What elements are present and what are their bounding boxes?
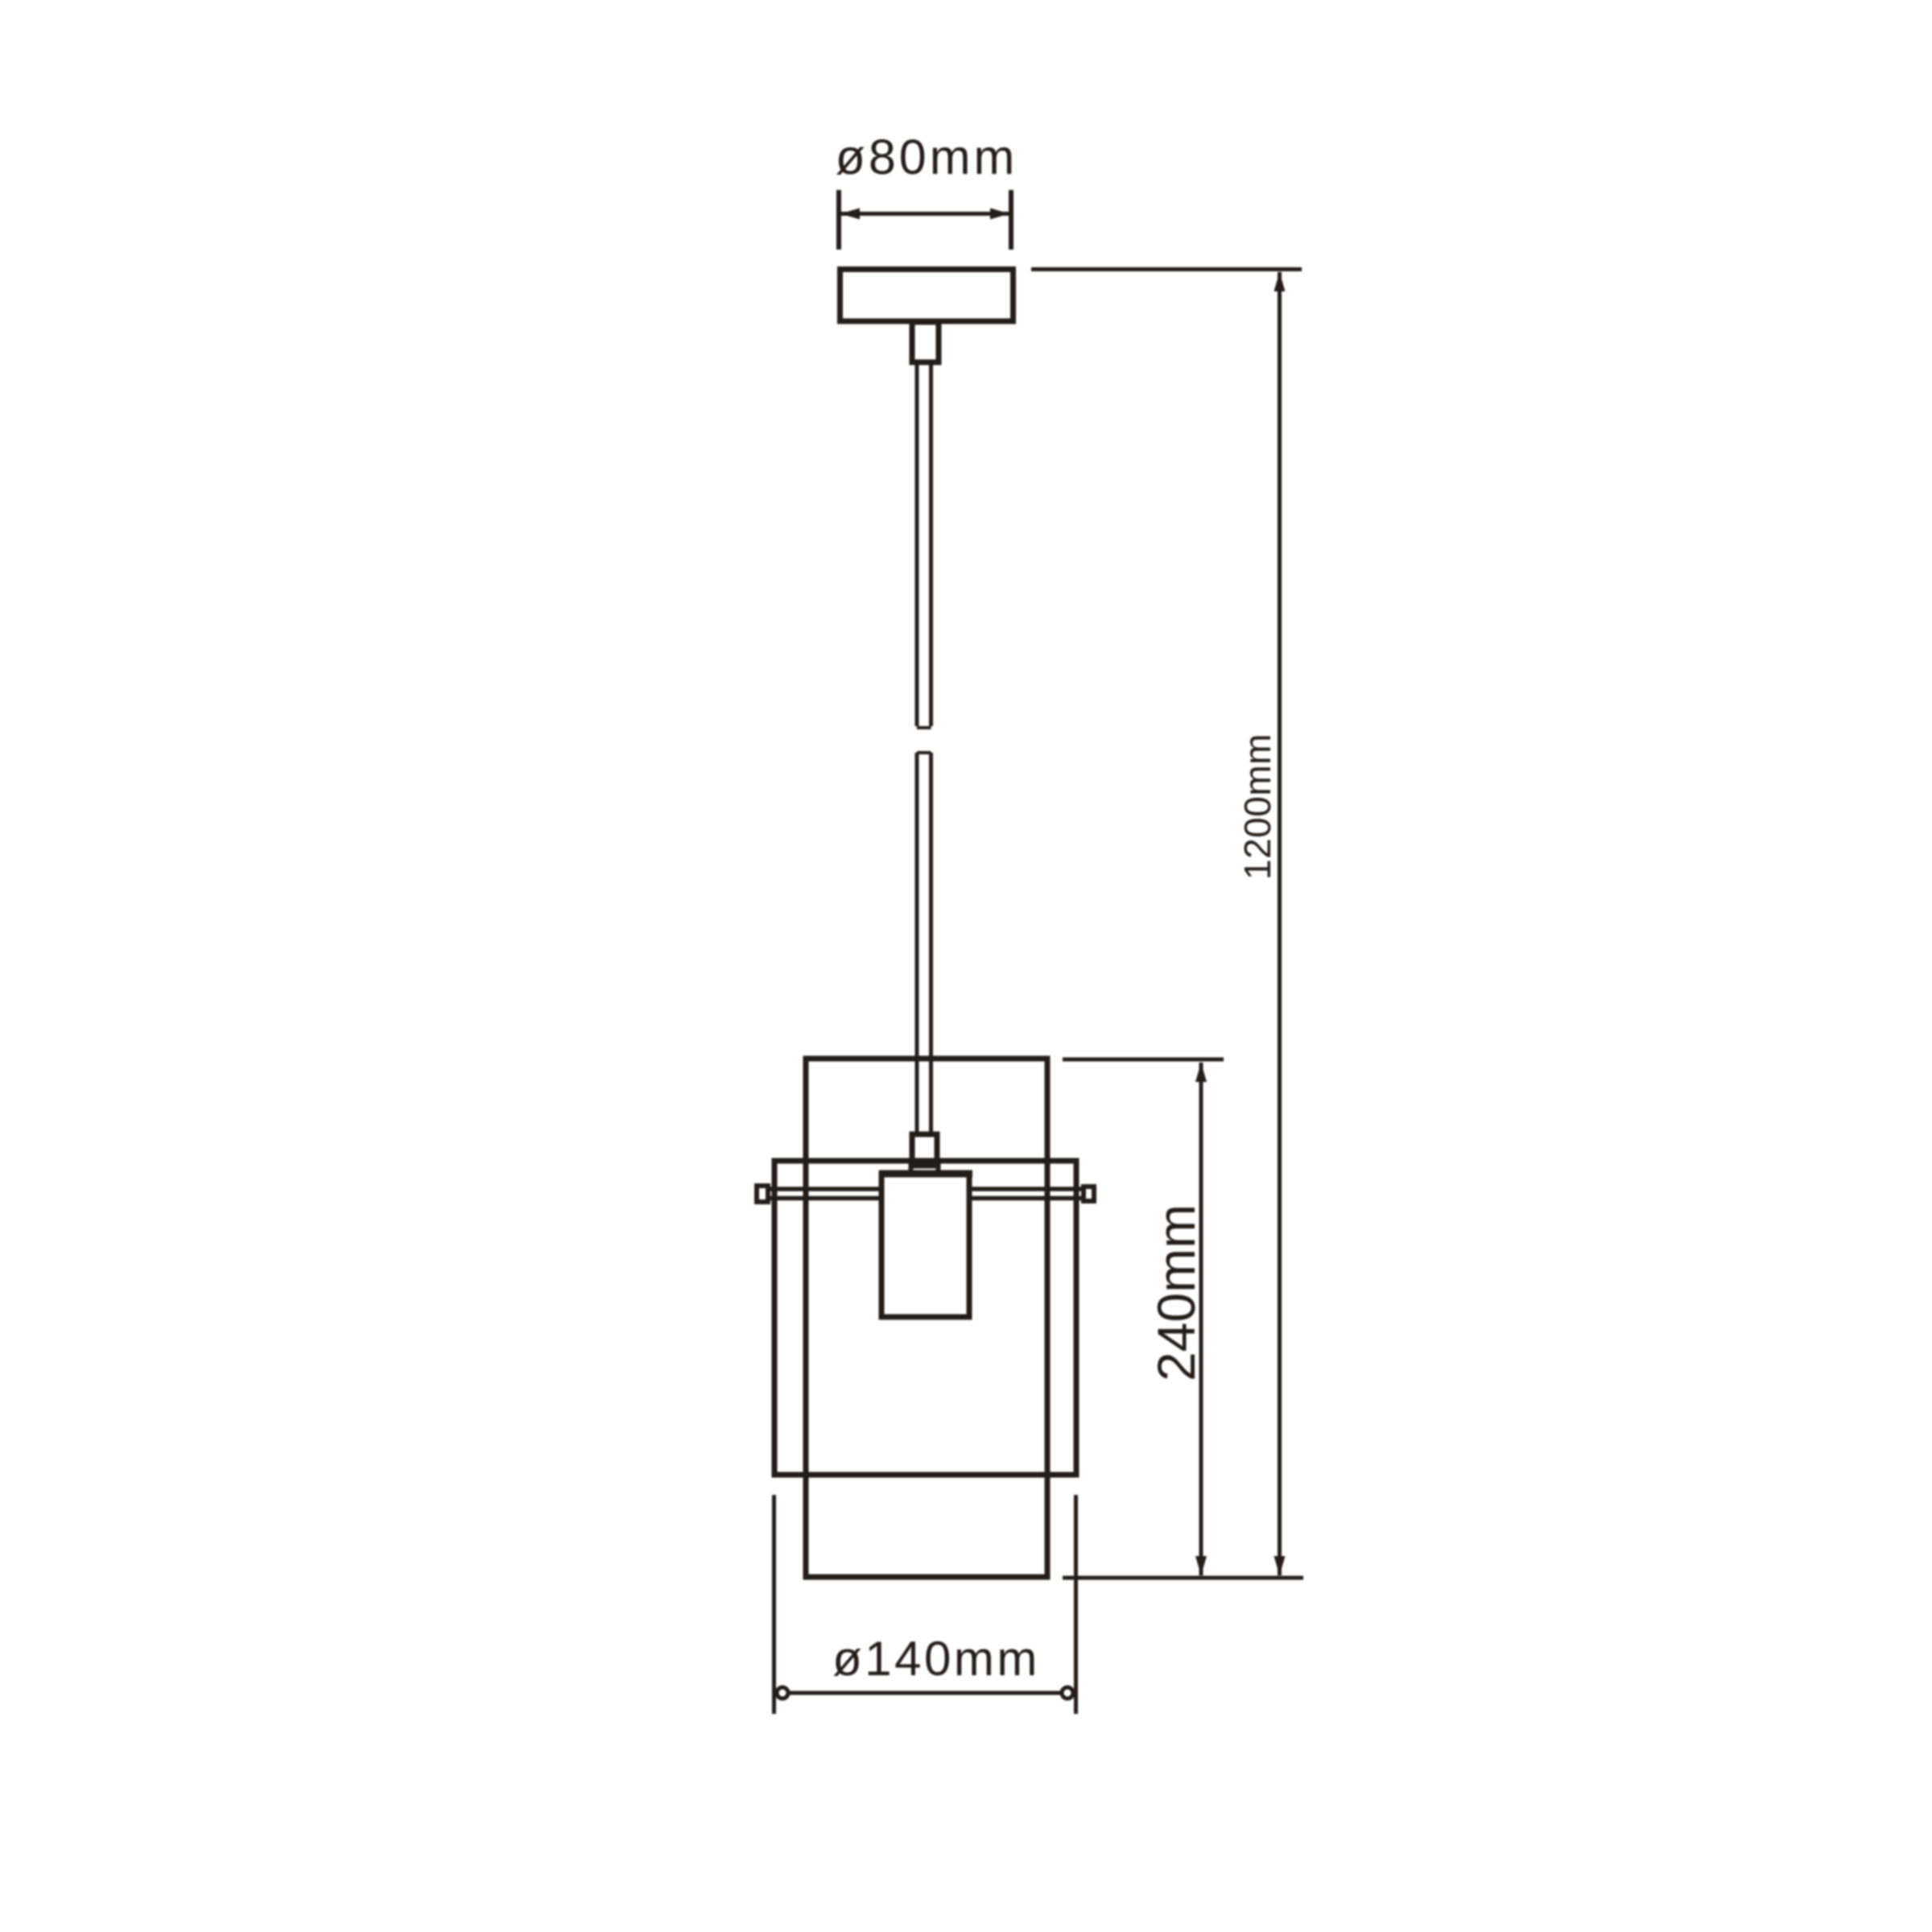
- svg-text:ø80mm: ø80mm: [836, 130, 1018, 184]
- svg-text:240mm: 240mm: [1146, 1204, 1206, 1381]
- svg-text:1200mm: 1200mm: [1236, 733, 1278, 880]
- svg-text:ø140mm: ø140mm: [832, 1632, 1040, 1686]
